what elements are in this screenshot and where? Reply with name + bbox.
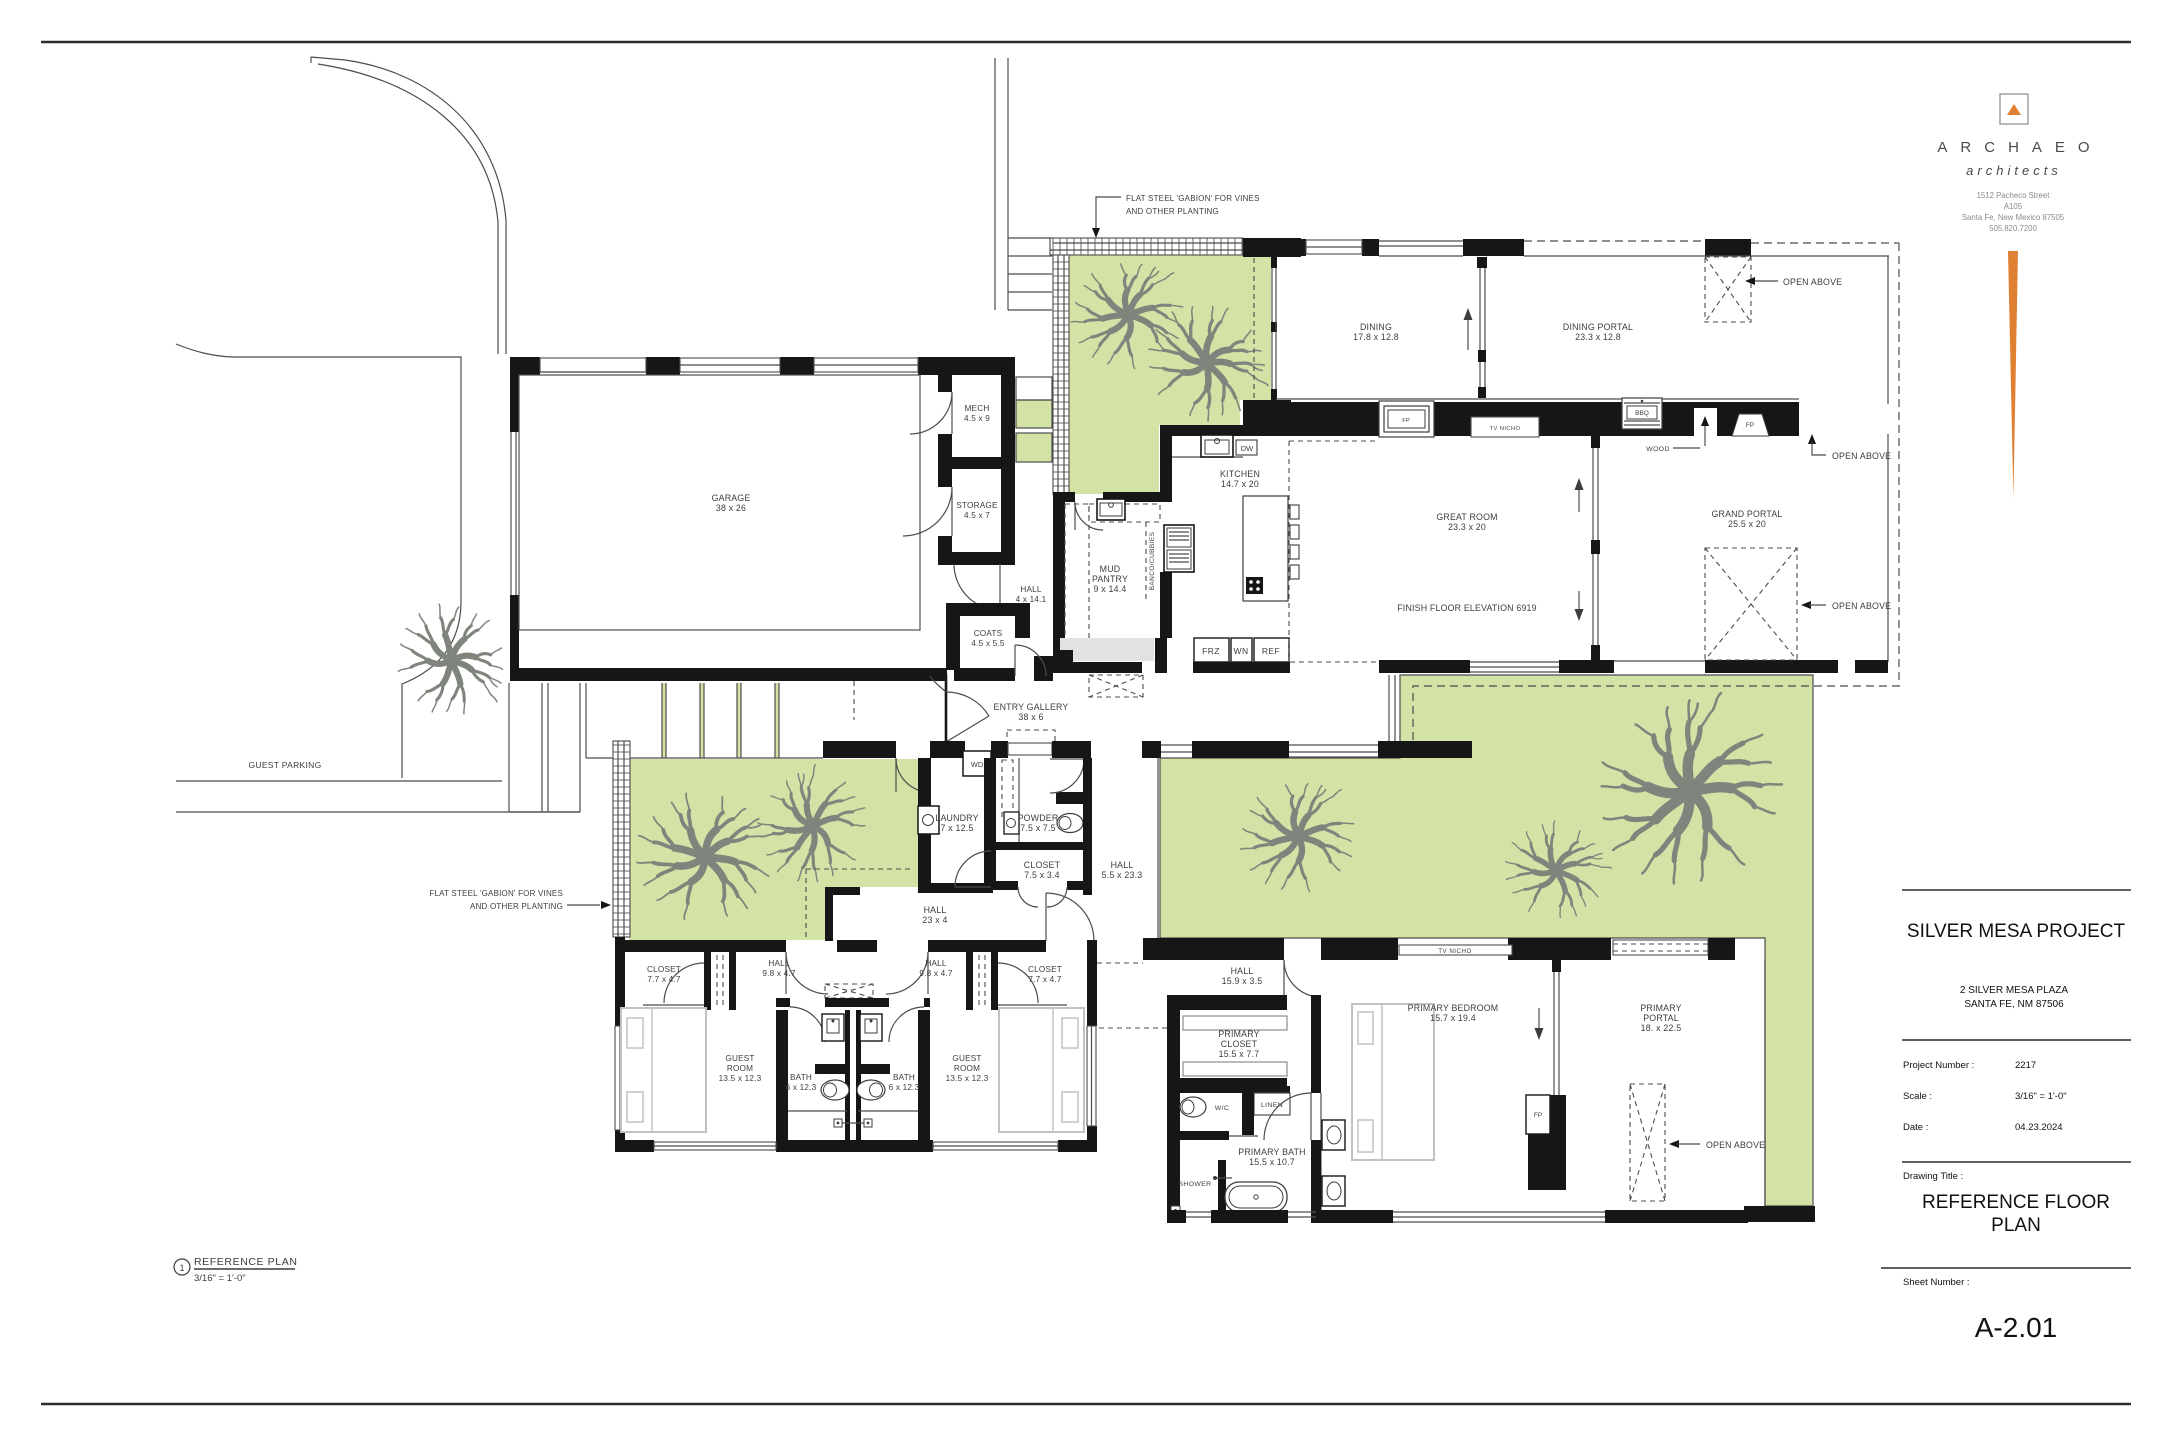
svg-text:WD: WD xyxy=(971,760,984,769)
svg-text:GREAT ROOM: GREAT ROOM xyxy=(1436,512,1497,522)
svg-text:MECH: MECH xyxy=(965,404,990,413)
svg-text:FINISH FLOOR ELEVATION 6919: FINISH FLOOR ELEVATION 6919 xyxy=(1397,603,1537,613)
svg-text:15.7 x 19.4: 15.7 x 19.4 xyxy=(1430,1013,1476,1023)
svg-text:CLOSET: CLOSET xyxy=(1028,965,1062,974)
svg-text:5.5 x 23.3: 5.5 x 23.3 xyxy=(1102,870,1143,880)
svg-text:CLOSET: CLOSET xyxy=(1221,1039,1258,1049)
svg-text:PRIMARY BATH: PRIMARY BATH xyxy=(1238,1147,1305,1157)
svg-text:04.23.2024: 04.23.2024 xyxy=(2015,1122,2063,1133)
svg-text:SHOWER: SHOWER xyxy=(1179,1181,1212,1188)
svg-text:38 x 6: 38 x 6 xyxy=(1018,712,1043,722)
svg-text:15.9 x 3.5: 15.9 x 3.5 xyxy=(1222,976,1263,986)
svg-text:505.820.7200: 505.820.7200 xyxy=(1989,224,2037,233)
svg-text:18. x 22.5: 18. x 22.5 xyxy=(1641,1023,1682,1033)
svg-text:13.5 x 12.3: 13.5 x 12.3 xyxy=(719,1074,762,1083)
svg-text:GUEST: GUEST xyxy=(952,1054,981,1063)
svg-text:LAUNDRY: LAUNDRY xyxy=(935,813,978,823)
svg-text:ROOM: ROOM xyxy=(727,1064,753,1073)
svg-text:23.3 x 12.8: 23.3 x 12.8 xyxy=(1575,332,1621,342)
svg-text:1512 Pacheco Street: 1512 Pacheco Street xyxy=(1977,191,2051,200)
svg-text:CLOSET: CLOSET xyxy=(647,965,681,974)
svg-text:W/C: W/C xyxy=(1215,1105,1229,1112)
svg-text:SANTA FE, NM 87506: SANTA FE, NM 87506 xyxy=(1964,999,2064,1010)
svg-text:9.8 x 4.7: 9.8 x 4.7 xyxy=(919,969,952,978)
svg-text:STORAGE: STORAGE xyxy=(956,501,998,510)
svg-text:7.5 x 3.4: 7.5 x 3.4 xyxy=(1024,870,1060,880)
svg-text:HALL: HALL xyxy=(1231,966,1254,976)
svg-text:Project Number :: Project Number : xyxy=(1903,1060,1974,1071)
svg-text:13.5 x 12.3: 13.5 x 12.3 xyxy=(946,1074,989,1083)
svg-text:HALL: HALL xyxy=(924,905,947,915)
svg-text:FLAT STEEL 'GABION' FOR VINES: FLAT STEEL 'GABION' FOR VINES xyxy=(429,889,563,898)
svg-text:PRIMARY BEDROOM: PRIMARY BEDROOM xyxy=(1408,1003,1499,1013)
svg-text:DW: DW xyxy=(1241,444,1254,453)
svg-text:Drawing Title :: Drawing Title : xyxy=(1903,1171,1963,1182)
svg-text:TV NICHO: TV NICHO xyxy=(1438,948,1472,955)
svg-text:7.7 x 4.7: 7.7 x 4.7 xyxy=(1028,975,1061,984)
svg-text:Santa Fe, New Mexico 87505: Santa Fe, New Mexico 87505 xyxy=(1962,213,2065,222)
svg-text:FLAT STEEL 'GABION' FOR VINES: FLAT STEEL 'GABION' FOR VINES xyxy=(1126,194,1260,203)
svg-text:ARCHAEO: ARCHAEO xyxy=(1937,139,2102,156)
svg-text:AND OTHER PLANTING: AND OTHER PLANTING xyxy=(470,902,563,911)
svg-text:BATH: BATH xyxy=(893,1073,915,1082)
svg-text:38 x 26: 38 x 26 xyxy=(716,503,746,513)
svg-text:9.8 x 4.7: 9.8 x 4.7 xyxy=(762,969,795,978)
svg-text:REFERENCE FLOOR: REFERENCE FLOOR xyxy=(1922,1192,2110,1213)
svg-text:2 SILVER MESA PLAZA: 2 SILVER MESA PLAZA xyxy=(1960,985,2069,996)
svg-text:BBQ: BBQ xyxy=(1635,410,1649,417)
svg-text:CLOSET: CLOSET xyxy=(1024,860,1061,870)
svg-text:4.5 x 9: 4.5 x 9 xyxy=(964,414,990,423)
svg-text:GARAGE: GARAGE xyxy=(712,493,751,503)
svg-text:TV NICHO: TV NICHO xyxy=(1490,426,1521,432)
svg-text:HALL: HALL xyxy=(1020,585,1042,594)
svg-text:OPEN ABOVE: OPEN ABOVE xyxy=(1832,601,1891,611)
svg-text:7 x 12.5: 7 x 12.5 xyxy=(941,823,974,833)
svg-text:15.5 x 10.7: 15.5 x 10.7 xyxy=(1249,1157,1295,1167)
svg-text:OPEN ABOVE: OPEN ABOVE xyxy=(1706,1140,1765,1150)
svg-text:SILVER MESA PROJECT: SILVER MESA PROJECT xyxy=(1907,921,2126,942)
svg-text:architects: architects xyxy=(1966,163,2062,178)
svg-text:FP: FP xyxy=(1402,418,1410,424)
svg-text:OPEN ABOVE: OPEN ABOVE xyxy=(1783,277,1842,287)
svg-text:WN: WN xyxy=(1234,646,1249,656)
svg-text:23.3 x 20: 23.3 x 20 xyxy=(1448,522,1486,532)
svg-text:GUEST: GUEST xyxy=(725,1054,754,1063)
svg-text:9 x 14.4: 9 x 14.4 xyxy=(1094,584,1127,594)
svg-text:AND OTHER PLANTING: AND OTHER PLANTING xyxy=(1126,207,1219,216)
svg-text:2217: 2217 xyxy=(2015,1060,2036,1071)
svg-text:KITCHEN: KITCHEN xyxy=(1220,469,1260,479)
svg-text:FRZ: FRZ xyxy=(1202,646,1220,656)
svg-text:Date :: Date : xyxy=(1903,1122,1928,1133)
svg-text:OPEN ABOVE: OPEN ABOVE xyxy=(1832,451,1891,461)
svg-text:ENTRY GALLERY: ENTRY GALLERY xyxy=(994,702,1069,712)
svg-text:6 x 12.3: 6 x 12.3 xyxy=(786,1083,817,1092)
svg-text:DINING: DINING xyxy=(1360,322,1392,332)
svg-text:GRAND PORTAL: GRAND PORTAL xyxy=(1712,509,1783,519)
svg-text:Scale :: Scale : xyxy=(1903,1091,1932,1102)
svg-text:PRIMARY: PRIMARY xyxy=(1640,1003,1681,1013)
svg-text:A105: A105 xyxy=(2004,202,2023,211)
svg-text:4.5 x 7: 4.5 x 7 xyxy=(964,511,990,520)
svg-text:REF: REF xyxy=(1262,646,1280,656)
svg-text:PLAN: PLAN xyxy=(1991,1215,2041,1236)
svg-text:6 x 12.3: 6 x 12.3 xyxy=(889,1083,920,1092)
svg-text:3/16" = 1'-0": 3/16" = 1'-0" xyxy=(2015,1091,2067,1102)
svg-text:4.5 x 5.5: 4.5 x 5.5 xyxy=(971,639,1004,648)
svg-text:7.7 x 4.7: 7.7 x 4.7 xyxy=(647,975,680,984)
svg-text:15.5 x 7.7: 15.5 x 7.7 xyxy=(1219,1049,1260,1059)
svg-text:COATS: COATS xyxy=(974,629,1003,638)
svg-text:REFERENCE PLAN: REFERENCE PLAN xyxy=(194,1256,298,1268)
svg-text:4 x 14.1: 4 x 14.1 xyxy=(1016,595,1047,604)
svg-text:FP: FP xyxy=(1746,422,1754,429)
svg-text:POWDER: POWDER xyxy=(1018,813,1059,823)
svg-text:BATH: BATH xyxy=(790,1073,812,1082)
svg-text:HALL: HALL xyxy=(768,959,790,968)
svg-text:A-2.01: A-2.01 xyxy=(1975,1312,2058,1343)
svg-text:BANCO/CUBBIES: BANCO/CUBBIES xyxy=(1149,531,1156,590)
svg-text:14.7 x 20: 14.7 x 20 xyxy=(1221,479,1259,489)
svg-text:FP: FP xyxy=(1534,1112,1542,1119)
svg-text:GUEST PARKING: GUEST PARKING xyxy=(248,760,321,770)
svg-text:HALL: HALL xyxy=(925,959,947,968)
svg-text:17.8 x 12.8: 17.8 x 12.8 xyxy=(1353,332,1399,342)
svg-text:Sheet Number :: Sheet Number : xyxy=(1903,1277,1970,1288)
svg-text:HALL: HALL xyxy=(1111,860,1134,870)
svg-text:WOOD: WOOD xyxy=(1646,446,1670,453)
svg-text:PORTAL: PORTAL xyxy=(1643,1013,1679,1023)
svg-text:7.5 x 7.5: 7.5 x 7.5 xyxy=(1020,823,1056,833)
svg-text:23 x 4: 23 x 4 xyxy=(922,915,947,925)
svg-text:3/16" = 1'-0": 3/16" = 1'-0" xyxy=(194,1273,246,1284)
svg-text:25.5 x 20: 25.5 x 20 xyxy=(1728,519,1766,529)
svg-text:MUD: MUD xyxy=(1100,564,1121,574)
svg-text:PRIMARY: PRIMARY xyxy=(1218,1029,1259,1039)
svg-text:DINING PORTAL: DINING PORTAL xyxy=(1563,322,1633,332)
svg-text:ROOM: ROOM xyxy=(954,1064,980,1073)
svg-text:PANTRY: PANTRY xyxy=(1092,574,1128,584)
svg-text:1: 1 xyxy=(179,1263,184,1273)
